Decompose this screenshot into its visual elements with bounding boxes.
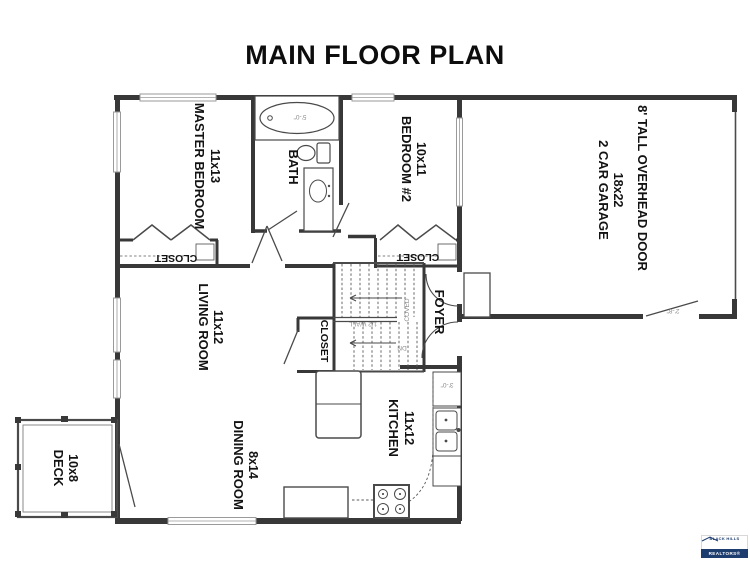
bedroom2-label: BEDROOM #2 [399, 116, 414, 202]
kitchen-fixtures [284, 371, 461, 518]
deck-label: DECK [51, 450, 66, 487]
bath-label: BATH [286, 149, 301, 184]
dishwasher [433, 372, 461, 406]
bedroom2-dims: 10x11 [414, 142, 428, 176]
bath-door-leaf [268, 211, 297, 230]
room-labels: MASTER BEDROOM 11x13 BATH BEDROOM #2 10x… [51, 103, 650, 510]
burner-dot-1 [382, 493, 384, 495]
realtor-logo: BLACK HILLS REALTORS® [701, 535, 748, 558]
tub-width-dim: 5'-0" [293, 113, 307, 120]
floor-plan-drawing: MASTER BEDROOM 11x13 BATH BEDROOM #2 10x… [0, 0, 750, 562]
logo-line2: REALTORS® [701, 549, 748, 558]
master-bedroom-label: MASTER BEDROOM [192, 103, 207, 229]
dimension-annotations: 5'-0" 1/2 WALL DN COVED 3'-0" 2'-8" [293, 113, 680, 388]
garage-door-dim: 2'-8" [666, 307, 680, 314]
window-bedroom2-top [352, 94, 394, 101]
living-room-dims: 11x12 [211, 310, 225, 344]
window-living-left-1 [114, 298, 121, 352]
deck-dims: 10x8 [66, 454, 80, 482]
dishwasher-dim: 3'-0" [440, 381, 454, 388]
corner-cabinet [433, 456, 461, 486]
master-bedroom-dims: 11x13 [208, 149, 222, 183]
dining-room-label: DINING ROOM [231, 420, 246, 510]
master-closet-label: CLOSET [154, 252, 197, 264]
vanity-sink [310, 180, 327, 202]
burner-dot-2 [399, 493, 401, 495]
sink-drain-2 [445, 440, 448, 443]
kitchen-dims: 11x12 [402, 411, 416, 445]
deck-door-leaf [119, 444, 135, 507]
roof-icon [701, 536, 719, 542]
half-wall-note: 1/2 WALL [348, 320, 377, 327]
master-closet-shelf-box [196, 244, 214, 260]
window-master-top [140, 94, 216, 101]
hall-closet-door-leaf [284, 330, 298, 364]
foyer-label: FOYER [432, 290, 447, 335]
bedroom2-closet-label: CLOSET [396, 251, 439, 263]
living-room-label: LIVING ROOM [196, 283, 211, 370]
stair-down-note: DN [397, 344, 407, 351]
window-living-left-2 [114, 360, 121, 398]
garage-dims: 18x22 [611, 173, 625, 208]
window-master-left [114, 112, 121, 172]
stair-up-arrow [350, 295, 402, 301]
logo-roof-box: BLACK HILLS [701, 535, 748, 549]
kitchen-label: KITCHEN [386, 399, 401, 457]
bedroom2-closet-shelf-box [438, 244, 456, 260]
tub-drain [268, 116, 273, 121]
overhead-door-label: 8' TALL OVERHEAD DOOR [635, 105, 650, 271]
window-dining-bottom [168, 518, 256, 525]
window-bedroom2-right [457, 118, 463, 206]
bedroom2-closet-bifold-doors [380, 225, 456, 240]
sink-faucet [457, 428, 461, 432]
buffet-counter [284, 487, 348, 518]
stair-down-arrow [350, 340, 396, 346]
burner-dot-3 [382, 508, 384, 510]
hall-closet-label: CLOSET [318, 320, 330, 363]
coved-note: COVED [404, 298, 411, 321]
floor-plan-canvas: MAIN FLOOR PLAN [0, 0, 750, 562]
garage-label: 2 CAR GARAGE [596, 140, 611, 240]
faucet-dot-2 [328, 195, 330, 197]
faucet-dot-1 [328, 185, 330, 187]
dining-room-dims: 8x14 [246, 451, 260, 479]
garage-step [464, 273, 490, 317]
burner-dot-4 [399, 508, 401, 510]
sink-drain-1 [445, 419, 448, 422]
toilet-tank [317, 143, 330, 163]
